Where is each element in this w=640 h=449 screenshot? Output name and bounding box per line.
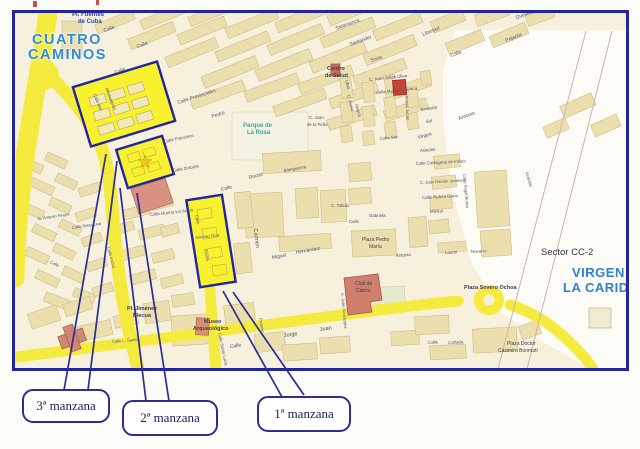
callout-label: 3ª manzana (36, 398, 96, 414)
park-label: La Rosa (247, 130, 270, 136)
map: CUATRO CAMINOS Pl. Fuentes de Cuba VIRGE… (12, 10, 629, 371)
street-label: Calle (428, 340, 438, 345)
district-label: LA CARIDAD (563, 281, 629, 294)
park-label: Parque de (243, 123, 272, 129)
street-label: Gabriela (369, 214, 386, 218)
poi-label: Pl. Jiménez (127, 307, 157, 313)
poi-label: Plaza Severo Ochoa (464, 286, 517, 292)
city-label: CUATRO (32, 33, 102, 48)
poi-label: María (369, 245, 382, 250)
street-label: C. Juan (309, 116, 324, 120)
street-label: Cañada (448, 340, 464, 345)
street-label: Navarro (471, 249, 487, 254)
street-label: Mistral (430, 209, 443, 214)
street-label: C. Toledo (331, 204, 349, 208)
callout-manzana-1: 1ª manzana (257, 396, 351, 432)
plaza-label: de Cuba (78, 19, 102, 25)
street-label: Calle (194, 215, 200, 225)
street-label: Sol (426, 119, 433, 124)
poi-label: Cabos (356, 289, 370, 294)
poi-label: de Salud (325, 74, 348, 80)
callout-manzana-2: 2ª manzana (122, 400, 218, 436)
poi-label: Centro (327, 67, 345, 73)
poi-label: Plaza Doctor (507, 342, 536, 347)
street-label: Calle (349, 220, 359, 224)
poi-label: Casimiro Bonmatí (498, 349, 538, 354)
plaza-label: Pl. Fuentes (72, 12, 104, 18)
street-label: Laurel (445, 250, 457, 255)
scan-mark (33, 1, 37, 7)
sector-label: Sector CC-2 (541, 248, 593, 258)
poi-label: Blecua (133, 314, 151, 320)
callout-label: 2ª manzana (140, 410, 200, 426)
callout-manzana-3: 3ª manzana (22, 389, 110, 423)
scan-mark (96, 0, 99, 5)
poi-label: Club de (355, 282, 372, 287)
district-label: VIRGEN (572, 266, 625, 279)
poi-label: Museo (204, 320, 221, 326)
cuatro-caminos-junction (29, 60, 59, 90)
poi-label: Arqueológico (193, 327, 228, 333)
poi-label: Plaza Pedro (362, 238, 389, 243)
callout-label: 1ª manzana (274, 406, 334, 422)
street-label: Teresa Jornet (404, 95, 410, 121)
map-graphics (12, 10, 629, 371)
map-inner: CUATRO CAMINOS Pl. Fuentes de Cuba VIRGE… (12, 10, 629, 371)
highlight-manzana-3 (73, 61, 175, 146)
highlight-manzana-1 (186, 195, 235, 288)
page: { "colors": { "map_border": "#23259c", "… (0, 0, 640, 449)
city-label: CAMINOS (28, 48, 107, 63)
street-label: Carmen (251, 228, 259, 248)
street-label: de la Peña (307, 123, 328, 127)
